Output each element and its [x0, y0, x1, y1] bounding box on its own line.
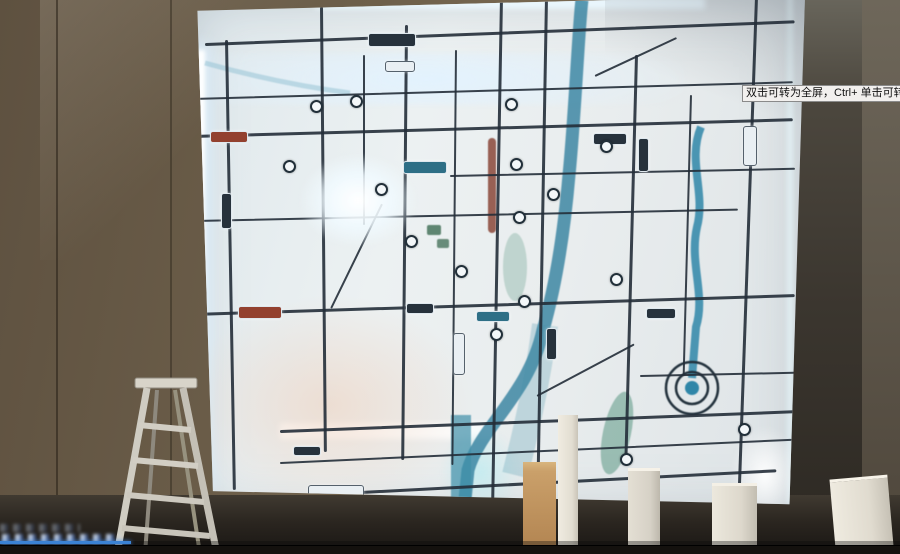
road-sign	[406, 303, 434, 314]
road-sign	[646, 308, 676, 319]
fullscreen-tooltip: 双击可转为全屏，Ctrl+ 单击可转为	[742, 85, 900, 102]
status-text-blurred	[0, 524, 80, 532]
road-sign	[368, 33, 416, 47]
progress-fill	[0, 541, 131, 544]
station-marker-icon	[490, 328, 503, 341]
metro-line-red	[488, 138, 496, 233]
lake-patch	[427, 225, 441, 235]
ladder-rung	[139, 425, 191, 430]
station-marker-icon	[283, 160, 296, 173]
road-sign-vertical	[453, 333, 465, 375]
wall-seam	[56, 0, 58, 554]
station-marker-icon	[350, 95, 363, 108]
station-marker-icon	[738, 423, 751, 436]
station-marker-icon	[310, 100, 323, 113]
ladder-top-cap	[135, 378, 197, 388]
lake-patch	[437, 239, 449, 248]
stepladder	[105, 370, 235, 554]
station-marker-icon	[455, 265, 468, 278]
station-marker-icon	[518, 295, 531, 308]
green-park-strip	[503, 233, 527, 301]
station-marker-icon	[620, 453, 633, 466]
wall-right-edge	[862, 0, 900, 554]
station-marker-icon	[405, 235, 418, 248]
road-sign	[476, 311, 510, 322]
road-sign-vertical	[221, 193, 232, 229]
road-line	[363, 55, 365, 225]
station-marker-icon	[610, 273, 623, 286]
station-marker-icon	[547, 188, 560, 201]
road-sign-vertical	[638, 138, 649, 172]
road-sign-vertical	[743, 126, 757, 166]
station-marker-icon	[600, 140, 613, 153]
green-park-strip	[595, 389, 640, 477]
station-marker-icon	[505, 98, 518, 111]
road-sign	[403, 161, 447, 174]
station-marker-icon	[513, 211, 526, 224]
road-sign	[238, 306, 282, 319]
road-sign	[210, 131, 248, 143]
ladder-rung	[133, 460, 198, 466]
river-right	[692, 127, 701, 378]
road-sign	[293, 446, 321, 456]
white-pillar	[558, 415, 578, 554]
station-marker-icon	[510, 158, 523, 171]
video-surface[interactable]: 双击可转为全屏，Ctrl+ 单击可转为	[0, 0, 900, 554]
road-sign-vertical	[546, 328, 557, 360]
video-control-bar[interactable]	[0, 545, 900, 554]
station-marker-icon	[375, 183, 388, 196]
map-lightbox	[185, 0, 805, 520]
road-sign	[385, 61, 415, 72]
spiral-center-water	[685, 381, 699, 395]
